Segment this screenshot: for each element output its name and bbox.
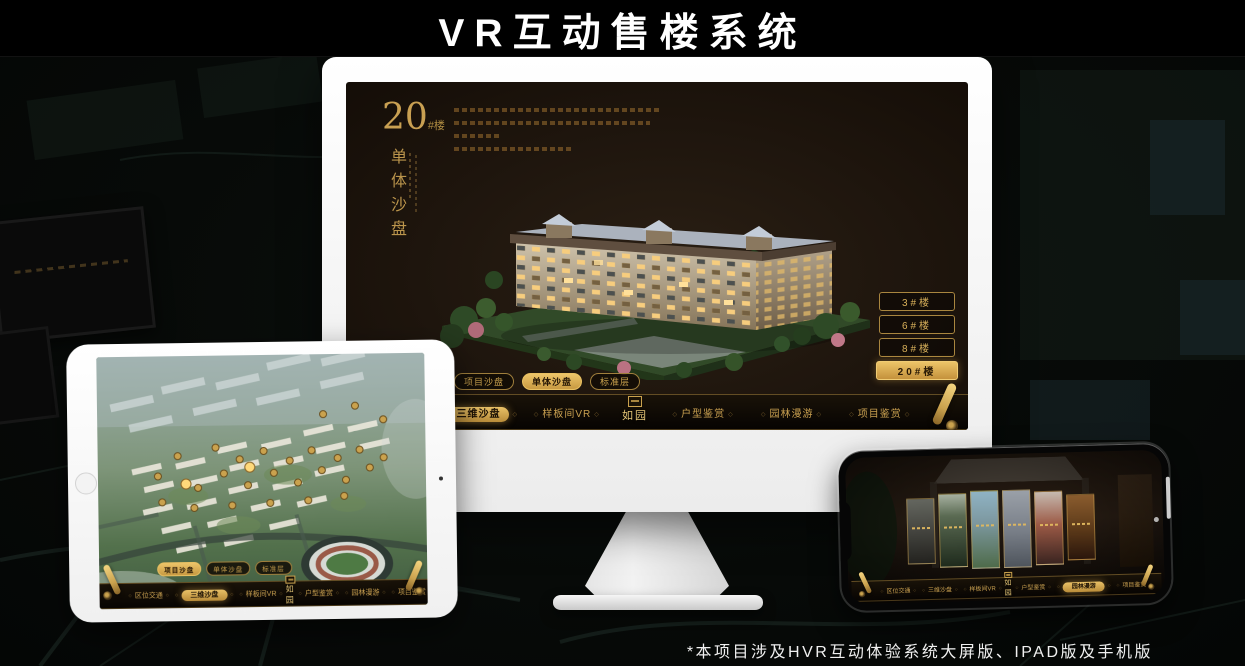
building-button-label: 6#楼: [902, 321, 932, 332]
scroll-end-decoration: [415, 587, 424, 596]
building-number-unit: #楼: [428, 120, 445, 132]
nav-item-label: 三维沙盘: [181, 589, 227, 601]
scroll-menu-icon[interactable]: [934, 382, 956, 430]
nav-item-label: 三维沙盘: [928, 587, 952, 594]
panorama-card[interactable]: [1002, 489, 1032, 568]
subtab-project-sandtable[interactable]: 项目沙盘: [454, 373, 514, 390]
nav-item-label: 样板间VR: [246, 591, 277, 598]
nav-item-showroom-vr[interactable]: 样板间VR: [523, 405, 611, 420]
nav-item-garden-roam[interactable]: 园林漫游: [342, 587, 389, 598]
nav-item-label: 园林漫游: [769, 409, 813, 420]
camera-dot: [439, 476, 443, 480]
home-button[interactable]: [75, 472, 97, 494]
subtab-standard-floor[interactable]: 标准层: [590, 373, 640, 390]
nav-item-label: 三维沙盘: [447, 407, 509, 422]
nav-item-project-gallery[interactable]: 项目鉴赏: [836, 405, 924, 420]
brand-logo: 如园: [1004, 571, 1013, 597]
panorama-card[interactable]: [1034, 490, 1064, 565]
subtab-standard-floor[interactable]: 标准层: [255, 561, 292, 576]
brand-logo-text: 如园: [286, 584, 296, 606]
main-nav-bar: 区位交通 三维沙盘 样板间VR 如园 户型鉴赏 园林漫游 项目鉴赏: [99, 579, 427, 610]
subtab-label: 项目沙盘: [464, 377, 504, 387]
nav-item-label: 园林漫游: [351, 589, 379, 596]
scroll-menu-icon[interactable]: [859, 571, 871, 596]
brand-logo: 如园: [285, 576, 295, 606]
tablet-screen: 项目沙盘 单体沙盘 标准层 区位交通 三维沙盘 样板间VR 如园 户型鉴赏 园林…: [96, 353, 427, 610]
nav-item-label: 项目鉴赏: [858, 409, 902, 420]
brand-logo-text: 如园: [622, 407, 648, 423]
scroll-end-decoration: [103, 591, 112, 600]
nav-item-label: 户型鉴赏: [681, 409, 725, 420]
building-button-label: 8#楼: [902, 344, 932, 355]
panorama-card[interactable]: [906, 498, 936, 565]
tablet-device: 项目沙盘 单体沙盘 标准层 区位交通 三维沙盘 样板间VR 如园 户型鉴赏 园林…: [66, 339, 458, 622]
section-title-vertical: 单体沙盘: [385, 148, 409, 244]
building-selector: 3#楼 6#楼 8#楼 20#楼: [874, 292, 960, 380]
nav-item-label: 户型鉴赏: [1021, 585, 1045, 592]
nav-item-garden-roam[interactable]: 园林漫游: [747, 405, 835, 420]
phone-device: 区位交通 三维沙盘 样板间VR 如园 户型鉴赏 园林漫游 项目鉴赏: [838, 443, 1172, 612]
building-number: 20: [382, 97, 428, 138]
building-button-3[interactable]: 3#楼: [879, 292, 955, 311]
monitor-stand-base: [553, 595, 763, 610]
subtab-label: 单体沙盘: [213, 566, 243, 573]
brand-seal-icon: [285, 576, 295, 584]
subtab-single-sandtable[interactable]: 单体沙盘: [522, 373, 582, 390]
subtab-label: 标准层: [600, 377, 630, 387]
nav-item-location-traffic[interactable]: 区位交通: [878, 585, 920, 595]
panorama-card[interactable]: [938, 493, 968, 568]
nav-item-label: 户型鉴赏: [305, 590, 333, 597]
scroll-menu-icon[interactable]: [104, 564, 120, 599]
brand-logo: 如园: [611, 396, 659, 423]
building-button-8[interactable]: 8#楼: [879, 338, 955, 357]
nav-item-floorplans[interactable]: 户型鉴赏: [1012, 582, 1054, 592]
building-button-6[interactable]: 6#楼: [879, 315, 955, 334]
vertical-english-caption-decoration: [415, 152, 417, 212]
building-button-20[interactable]: 20#楼: [876, 361, 958, 380]
sandtable-subtabs: 项目沙盘 单体沙盘 标准层: [157, 561, 292, 577]
nav-item-3d-sandtable[interactable]: 三维沙盘: [172, 589, 237, 600]
nav-item-garden-roam[interactable]: 园林漫游: [1054, 580, 1114, 591]
building-headline: 20#楼: [382, 100, 445, 136]
footnote-text: *本项目涉及HVR互动体验系统大屏版、IPAD版及手机版: [687, 638, 1153, 662]
panorama-gallery: [906, 479, 1104, 578]
phone-screen: 区位交通 三维沙盘 样板间VR 如园 户型鉴赏 园林漫游 项目鉴赏: [845, 450, 1165, 604]
sandtable-subtabs: 项目沙盘 单体沙盘 标准层: [454, 373, 640, 390]
nav-item-floorplans[interactable]: 户型鉴赏: [659, 405, 747, 420]
nav-item-label: 园林漫游: [1063, 581, 1105, 592]
vertical-english-caption-decoration: [409, 152, 411, 198]
panorama-card[interactable]: [1066, 494, 1096, 561]
nav-item-location-traffic[interactable]: 区位交通: [126, 590, 173, 601]
nav-item-showroom-vr[interactable]: 样板间VR: [236, 589, 285, 600]
subtab-label: 标准层: [262, 566, 285, 573]
nav-item-label: 样板间VR: [969, 586, 995, 593]
scroll-menu-icon[interactable]: [406, 559, 422, 594]
building-button-label: 3#楼: [902, 298, 932, 309]
nav-item-3d-sandtable[interactable]: 三维沙盘: [919, 584, 961, 594]
subtab-label: 项目沙盘: [164, 567, 194, 574]
subtab-project-sandtable[interactable]: 项目沙盘: [157, 562, 201, 577]
nav-item-label: 区位交通: [135, 592, 163, 599]
brand-seal-icon: [628, 396, 642, 407]
building-3d-render[interactable]: [424, 140, 884, 380]
subtab-single-sandtable[interactable]: 单体沙盘: [206, 561, 250, 576]
camera-dot: [1154, 517, 1159, 522]
brand-logo-text: 如园: [1004, 577, 1013, 597]
phone-notch: [839, 501, 852, 561]
nav-item-floorplans[interactable]: 户型鉴赏: [296, 588, 343, 599]
poster-canvas: VR互动售楼系统 20#楼 单体沙盘: [0, 0, 1245, 666]
nav-item-label: 区位交通: [886, 588, 910, 595]
nav-item-showroom-vr[interactable]: 样板间VR: [961, 583, 1005, 593]
subtab-label: 单体沙盘: [532, 377, 572, 387]
page-title: VR互动售楼系统: [0, 2, 1245, 58]
building-button-label: 20#楼: [898, 367, 937, 378]
panorama-card[interactable]: [970, 490, 1000, 569]
nav-item-label: 样板间VR: [542, 409, 591, 420]
brand-seal-icon: [1004, 571, 1012, 577]
background-plaque-decoration: [0, 206, 156, 344]
scroll-end-decoration: [946, 420, 958, 430]
scroll-menu-icon[interactable]: [1141, 564, 1153, 589]
